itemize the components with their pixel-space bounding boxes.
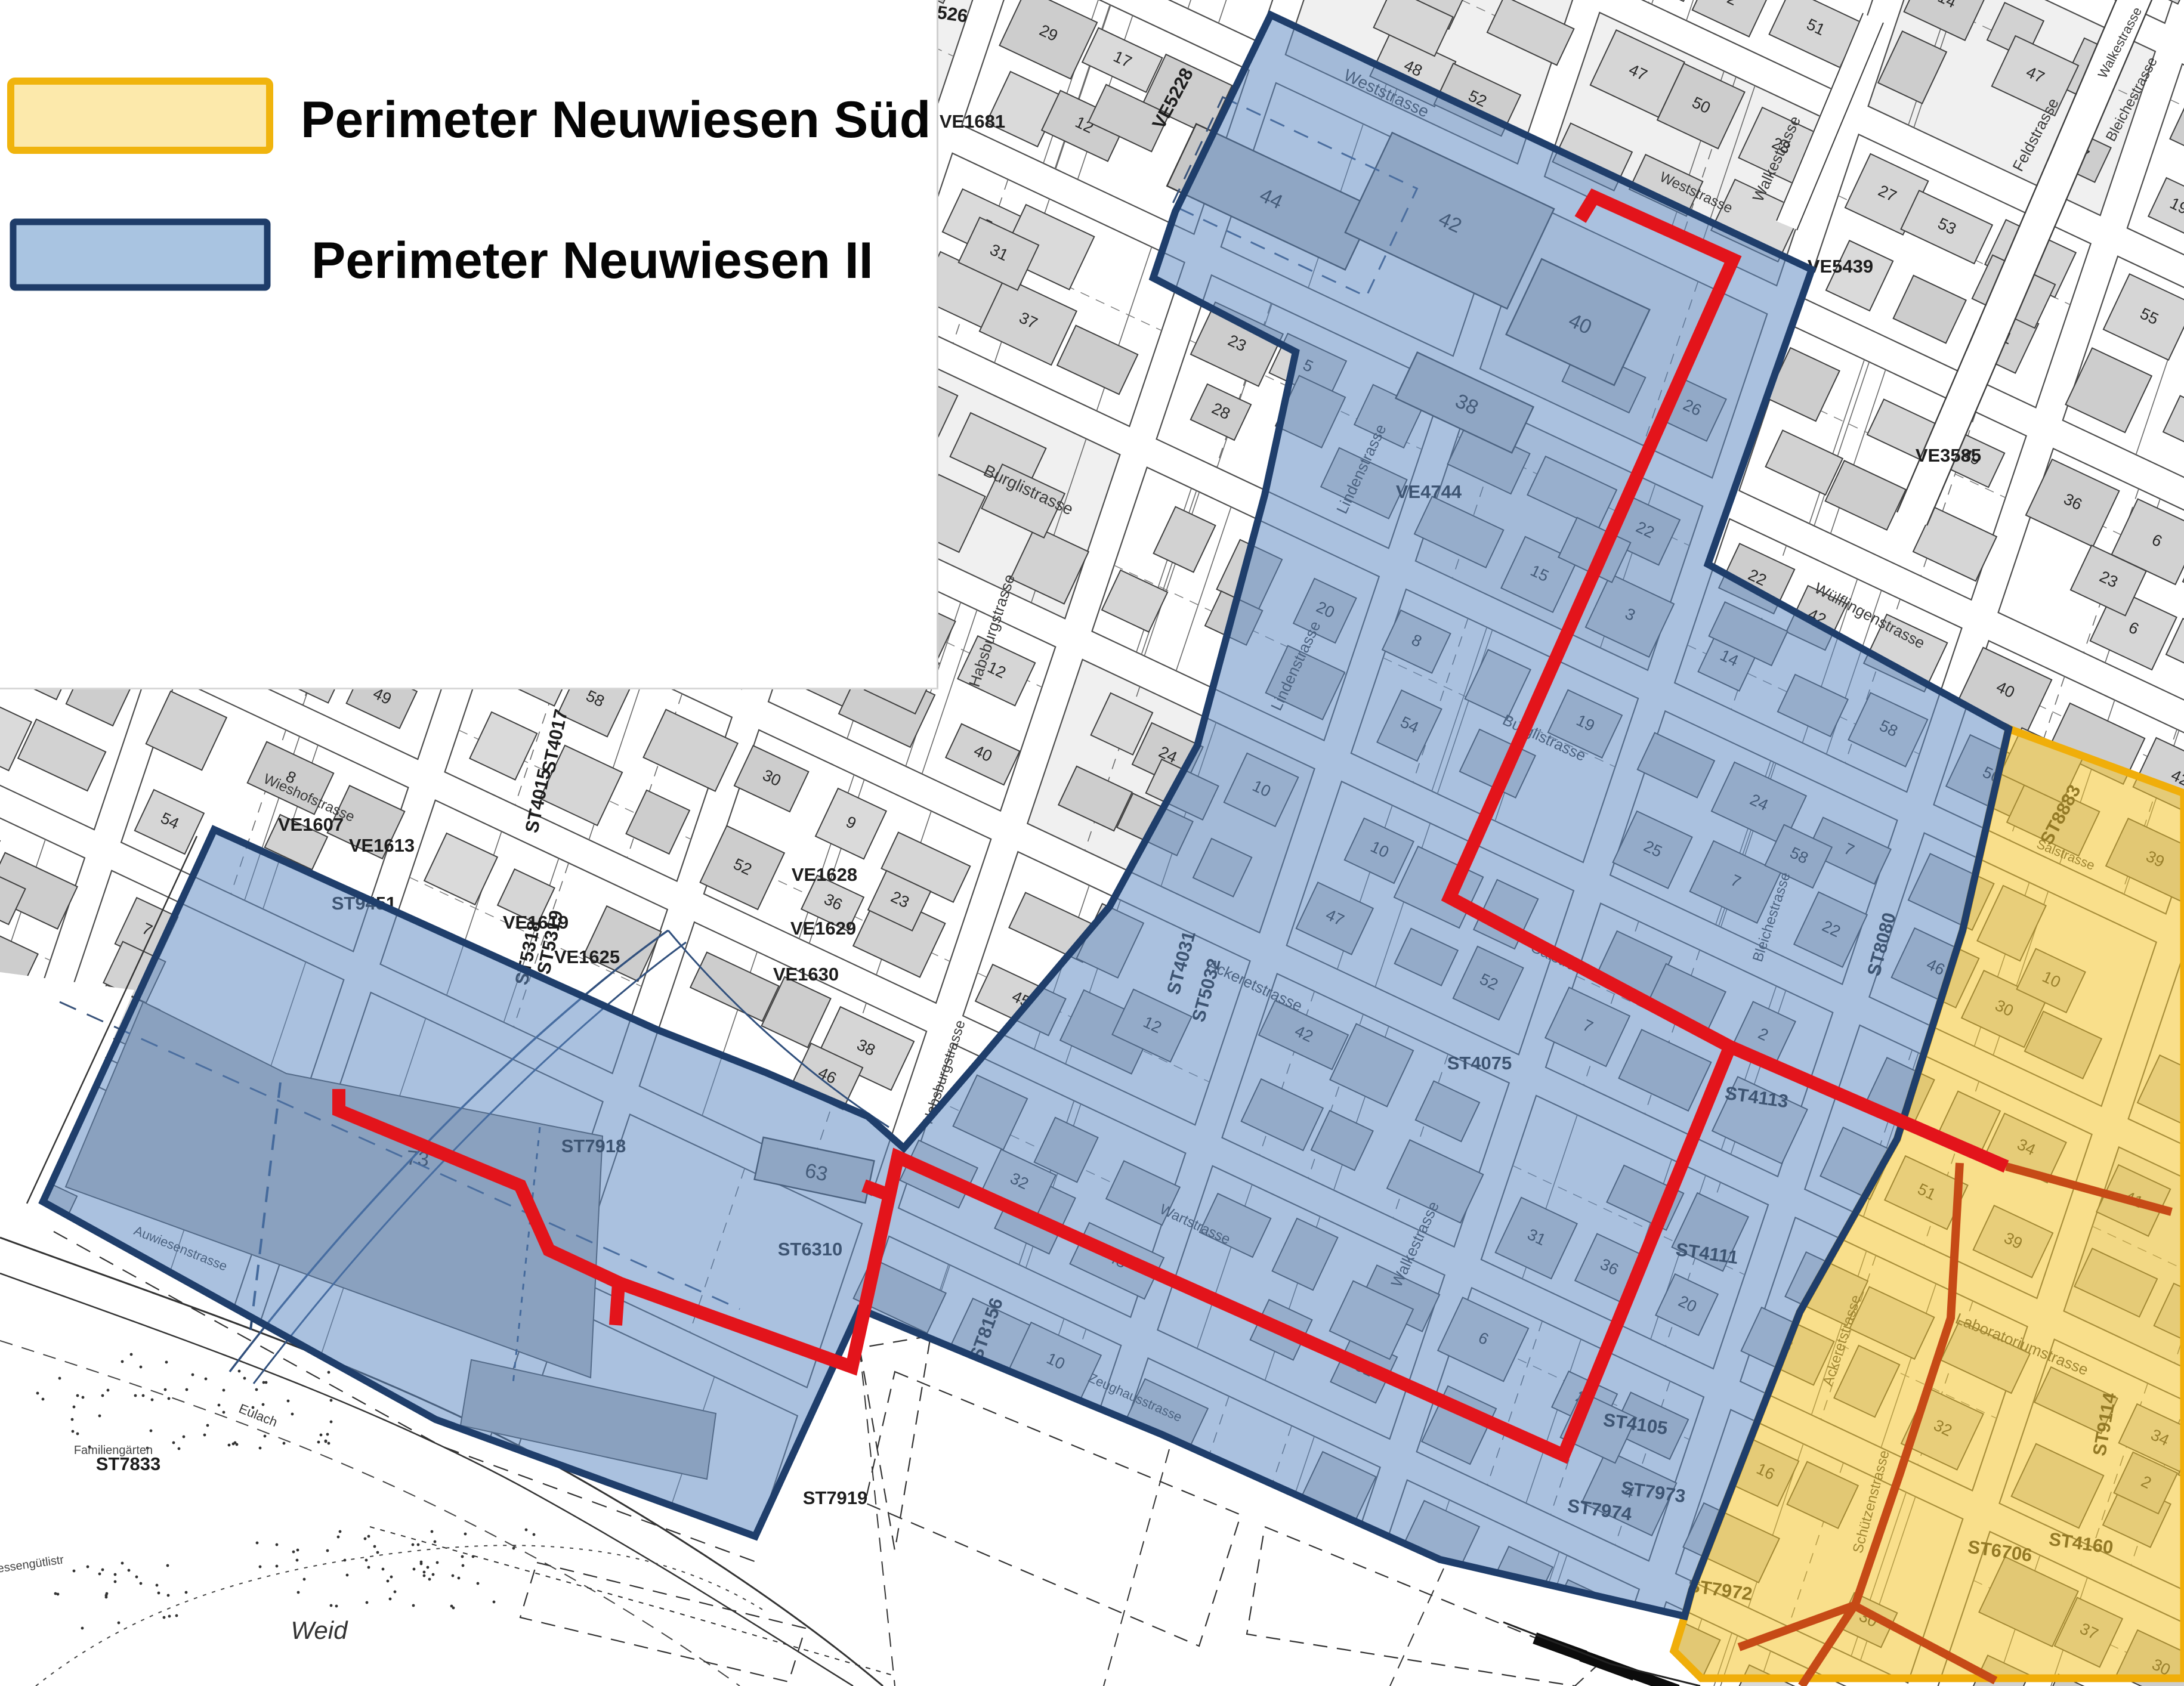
svg-text:VE3585: VE3585 <box>1916 445 1981 466</box>
svg-text:Weid: Weid <box>291 1616 349 1644</box>
svg-text:VE1625: VE1625 <box>554 946 620 967</box>
svg-text:VE5439: VE5439 <box>1808 256 1873 277</box>
svg-text:VE1628: VE1628 <box>792 864 857 885</box>
svg-text:VE1630: VE1630 <box>773 964 839 985</box>
svg-text:VE1629: VE1629 <box>790 918 856 939</box>
svg-text:Perimeter Neuwiesen Süd: Perimeter Neuwiesen Süd <box>301 91 931 149</box>
svg-text:ST7919: ST7919 <box>803 1487 868 1508</box>
svg-text:Perimeter Neuwiesen II: Perimeter Neuwiesen II <box>311 232 873 289</box>
svg-text:VE1613: VE1613 <box>349 835 415 856</box>
svg-text:VE1681: VE1681 <box>940 111 1005 132</box>
svg-text:Familiengärten: Familiengärten <box>74 1444 153 1457</box>
